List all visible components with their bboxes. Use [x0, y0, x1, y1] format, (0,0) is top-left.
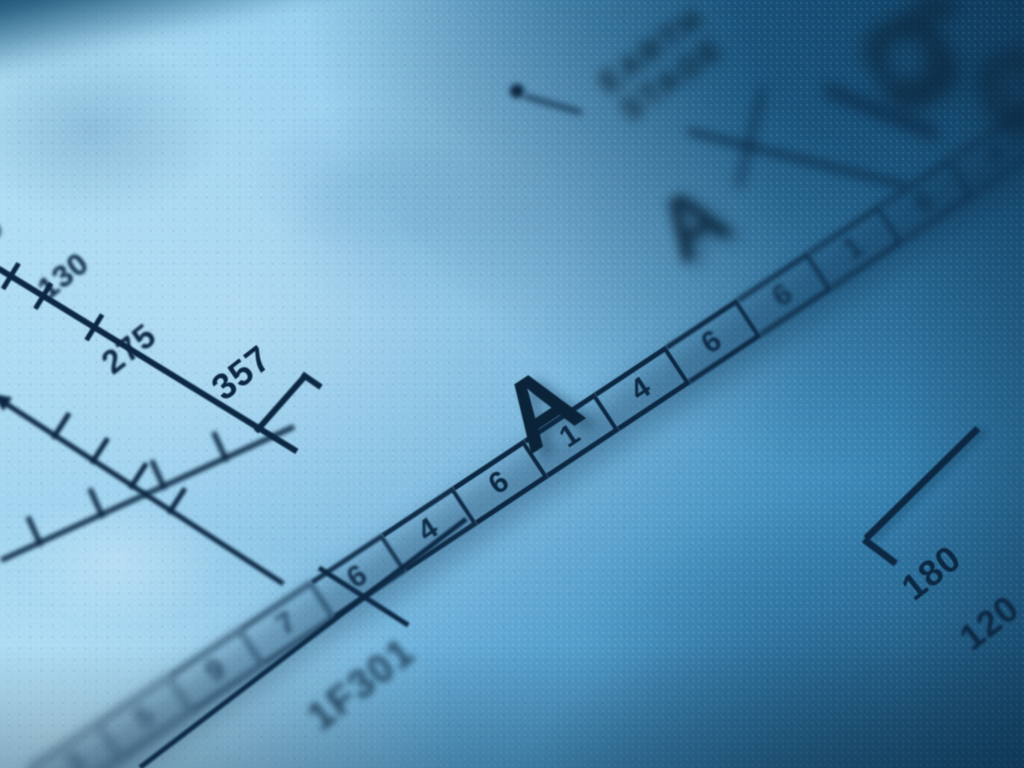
- top-left-paper-edge-shadow: [0, 0, 352, 100]
- dimension-tick: [84, 313, 104, 341]
- top-annotation-text: EARTH STAGE: [547, 0, 778, 162]
- scale-tick: [211, 431, 229, 462]
- left-scale-label-0: 0: [0, 210, 10, 248]
- scale-tick: [167, 487, 188, 515]
- dimension-bracket: [254, 376, 306, 434]
- crossing-dimension-line: [0, 424, 295, 562]
- scale-tick: [128, 462, 149, 490]
- blurred-corner-marking: [915, 0, 959, 20]
- blueprint-photo: 0 130 275 357 3 5 9 7 6 4 6 1 4 6 6 1 6 …: [0, 0, 1024, 768]
- left-scale-label-275: 275: [94, 316, 163, 382]
- scale-tick: [87, 487, 105, 518]
- annotation-frame-bar: [736, 87, 766, 187]
- right-scale-label-120: 120: [952, 587, 1024, 659]
- annotation-frame-line: [687, 128, 907, 188]
- arrowhead-icon: [0, 387, 12, 411]
- scale-tick: [149, 459, 167, 490]
- scale-tick: [89, 437, 110, 465]
- right-dimension-bracket-foot: [862, 537, 898, 567]
- right-dimension-bracket: [864, 426, 981, 541]
- leader-dot: [510, 84, 524, 98]
- dimension-tick: [1, 262, 21, 290]
- marker-letter-a-blurred: A: [637, 163, 746, 283]
- scale-tick: [26, 516, 44, 547]
- scale-tick: [51, 412, 72, 440]
- right-scale-label-180: 180: [894, 537, 970, 609]
